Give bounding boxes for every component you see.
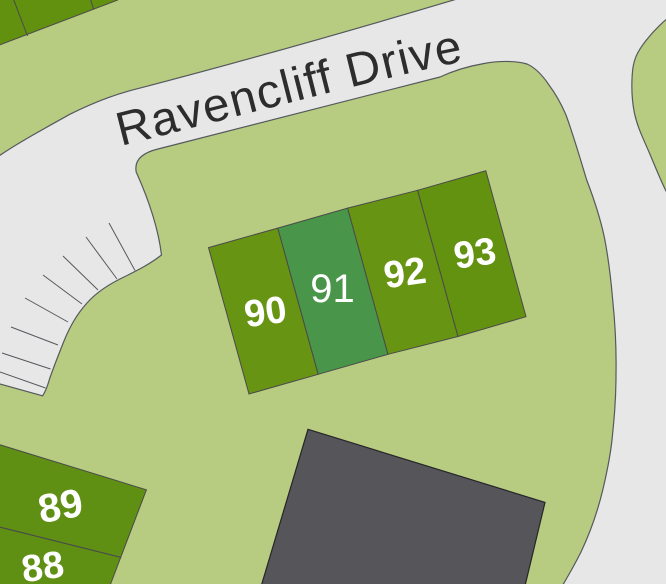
svg-text:90: 90 bbox=[242, 289, 290, 336]
svg-text:89: 89 bbox=[35, 481, 86, 532]
svg-text:93: 93 bbox=[451, 230, 499, 277]
svg-text:91: 91 bbox=[310, 267, 355, 311]
svg-text:88: 88 bbox=[19, 544, 67, 584]
svg-text:92: 92 bbox=[381, 250, 429, 297]
